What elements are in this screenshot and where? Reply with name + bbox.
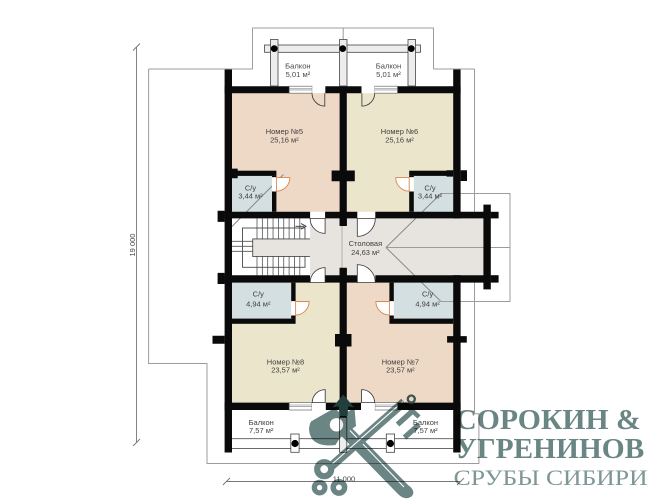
svg-text:19 000: 19 000 — [128, 234, 137, 257]
svg-text:23,57 м²: 23,57 м² — [271, 366, 300, 375]
svg-text:4,94 м²: 4,94 м² — [246, 299, 271, 308]
svg-text:УГРЕНИНОВ: УГРЕНИНОВ — [455, 433, 644, 465]
svg-text:4,94 м²: 4,94 м² — [415, 299, 440, 308]
svg-text:С/у: С/у — [422, 289, 434, 298]
svg-text:3,44 м²: 3,44 м² — [238, 191, 263, 200]
svg-text:3,44 м²: 3,44 м² — [418, 191, 443, 200]
svg-text:5,01 м²: 5,01 м² — [286, 70, 311, 79]
svg-text:24,63 м²: 24,63 м² — [351, 248, 380, 257]
svg-text:25,16 м²: 25,16 м² — [385, 135, 414, 144]
svg-text:С/у: С/у — [253, 289, 265, 298]
svg-text:СРУБЫ СИБИРИ: СРУБЫ СИБИРИ — [454, 465, 648, 490]
svg-text:23,57 м²: 23,57 м² — [386, 366, 415, 375]
svg-text:СОРОКИН &: СОРОКИН & — [455, 404, 641, 436]
svg-text:5,01 м²: 5,01 м² — [376, 70, 401, 79]
svg-text:25,16 м²: 25,16 м² — [270, 135, 299, 144]
svg-text:7,57 м²: 7,57 м² — [249, 426, 274, 435]
